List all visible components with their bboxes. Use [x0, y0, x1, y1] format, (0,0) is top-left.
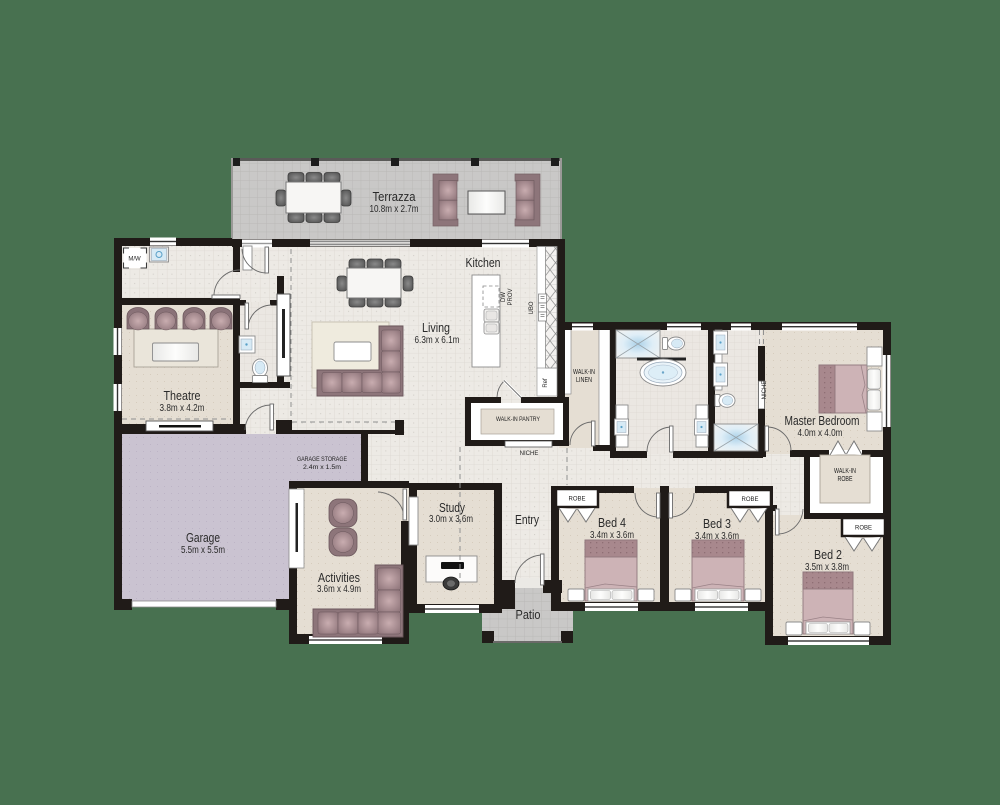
svg-text:NICHE: NICHE: [762, 381, 768, 400]
svg-text:3.0m x 3.6m: 3.0m x 3.6m: [429, 514, 473, 525]
svg-text:2.4m x 1.5m: 2.4m x 1.5m: [303, 465, 341, 471]
svg-text:WALK-IN PANTRY: WALK-IN PANTRY: [496, 417, 540, 423]
svg-text:WALK-IN: WALK-IN: [573, 369, 595, 376]
svg-text:Study: Study: [439, 501, 466, 515]
svg-text:Terrazza: Terrazza: [373, 190, 416, 204]
svg-text:Patio: Patio: [516, 608, 541, 622]
svg-text:3.5m x 3.8m: 3.5m x 3.8m: [805, 562, 849, 573]
svg-text:10.8m x 2.7m: 10.8m x 2.7m: [370, 204, 419, 215]
svg-text:6.3m x 6.1m: 6.3m x 6.1m: [415, 335, 460, 346]
svg-text:Entry: Entry: [515, 513, 540, 527]
svg-text:Theatre: Theatre: [164, 389, 201, 403]
svg-text:Bed 2: Bed 2: [814, 548, 842, 562]
svg-text:Garage: Garage: [186, 531, 220, 545]
svg-text:DW: DW: [501, 292, 507, 302]
svg-text:Living: Living: [422, 321, 450, 335]
svg-text:UBO: UBO: [529, 301, 535, 314]
svg-text:ROBE: ROBE: [855, 526, 872, 532]
svg-text:Activities: Activities: [318, 571, 360, 585]
svg-text:ROBE: ROBE: [741, 497, 758, 503]
svg-text:3.4m x 3.6m: 3.4m x 3.6m: [695, 531, 739, 542]
svg-text:NICHE: NICHE: [520, 451, 539, 457]
svg-text:3.4m x 3.6m: 3.4m x 3.6m: [590, 530, 634, 541]
svg-text:Bed 3: Bed 3: [703, 517, 731, 531]
svg-text:GARAGE STORAGE: GARAGE STORAGE: [297, 457, 347, 463]
svg-text:ROBE: ROBE: [838, 476, 853, 483]
svg-text:4.0m x 4.0m: 4.0m x 4.0m: [798, 428, 843, 439]
svg-text:Master Bedroom: Master Bedroom: [785, 414, 860, 428]
svg-text:Ref: Ref: [543, 378, 549, 388]
svg-text:PROV: PROV: [508, 288, 514, 305]
svg-text:WALK-IN: WALK-IN: [834, 468, 856, 475]
svg-text:3.8m x 4.2m: 3.8m x 4.2m: [160, 403, 205, 414]
svg-text:M/W: M/W: [128, 257, 141, 263]
svg-text:Bed 4: Bed 4: [598, 516, 626, 530]
svg-text:LINEN: LINEN: [576, 377, 592, 384]
svg-text:5.5m x 5.5m: 5.5m x 5.5m: [181, 545, 225, 556]
svg-text:3.6m x 4.9m: 3.6m x 4.9m: [317, 584, 361, 595]
svg-text:Kitchen: Kitchen: [466, 256, 501, 270]
svg-text:ROBE: ROBE: [568, 497, 585, 503]
